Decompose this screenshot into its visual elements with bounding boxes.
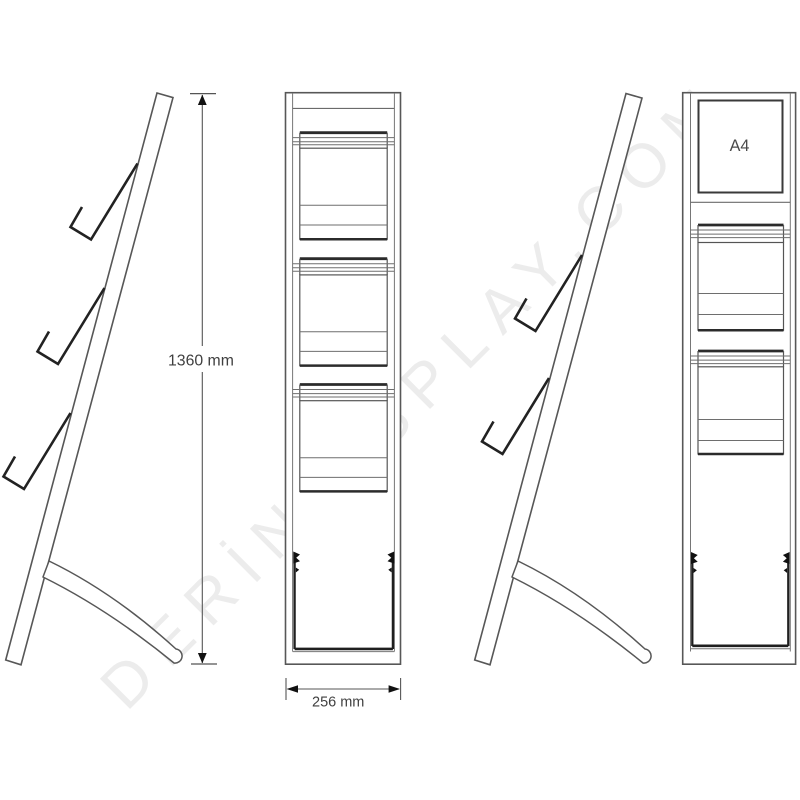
svg-text:DERİNDİSPLAY.COM: DERİNDİSPLAY.COM — [88, 65, 745, 722]
svg-text:A4: A4 — [730, 137, 750, 155]
svg-text:256 mm: 256 mm — [312, 695, 364, 711]
svg-text:1360 mm: 1360 mm — [168, 353, 234, 370]
